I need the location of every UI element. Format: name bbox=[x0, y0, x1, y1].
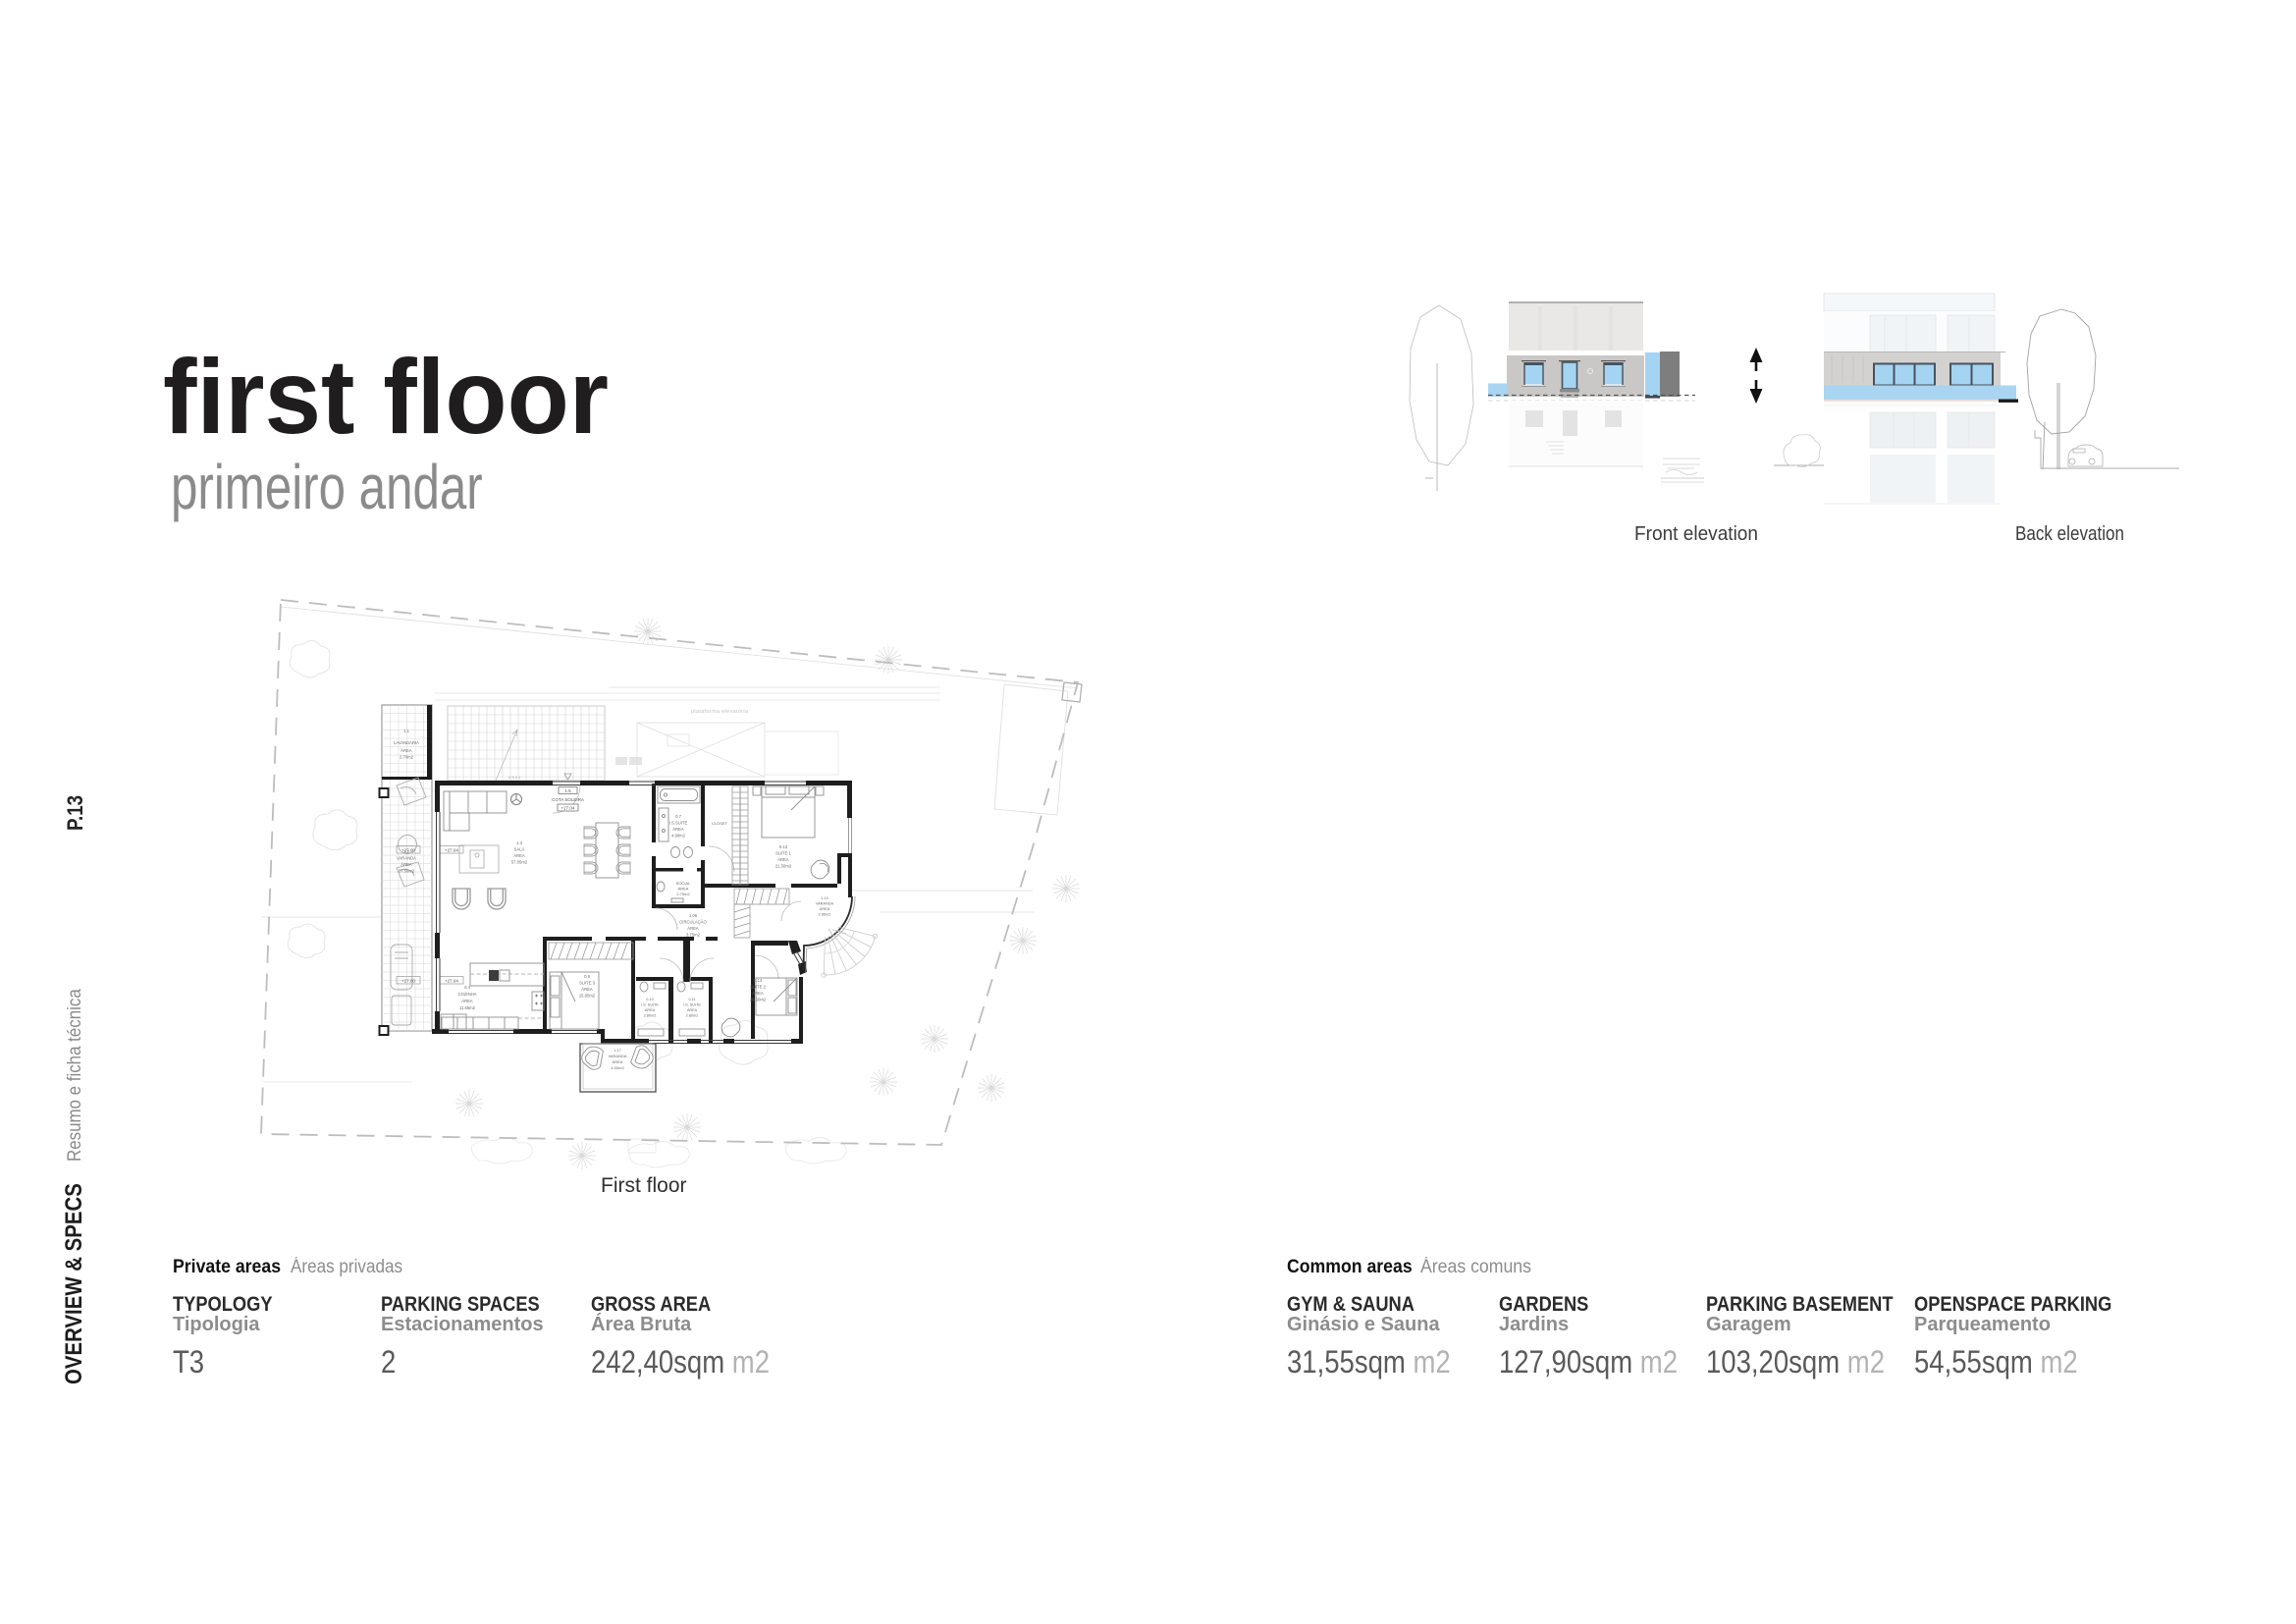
svg-text:11.65m2: 11.65m2 bbox=[459, 1005, 476, 1010]
svg-text:ÁREA: ÁREA bbox=[613, 1059, 623, 1064]
svg-text:ÁREA: ÁREA bbox=[687, 926, 699, 931]
svg-text:4 3 2 1: 4 3 2 1 bbox=[508, 775, 521, 780]
svg-text:0.11: 0.11 bbox=[688, 998, 695, 1001]
svg-text:4.50m2: 4.50m2 bbox=[611, 1065, 624, 1070]
svg-text:3.75m2: 3.75m2 bbox=[686, 933, 701, 938]
svg-text:ÁREA: ÁREA bbox=[461, 999, 473, 1003]
svg-text:2.85m2: 2.85m2 bbox=[819, 913, 831, 917]
svg-text:ÁREA: ÁREA bbox=[513, 853, 525, 858]
svg-text:VARANDA: VARANDA bbox=[816, 902, 834, 906]
svg-text:ÁREA: ÁREA bbox=[687, 1008, 698, 1012]
svg-text:1.06: 1.06 bbox=[689, 913, 698, 918]
svg-text:SUITE 2: SUITE 2 bbox=[750, 985, 766, 990]
svg-text:CLOSET: CLOSET bbox=[712, 821, 728, 826]
svg-text:1.5: 1.5 bbox=[564, 788, 571, 793]
svg-text:21.50m2: 21.50m2 bbox=[775, 864, 792, 869]
svg-text:ÁREA: ÁREA bbox=[400, 748, 412, 753]
svg-text:ÁREA: ÁREA bbox=[820, 907, 830, 911]
svg-text:LAVANDARIA: LAVANDARIA bbox=[394, 740, 419, 745]
svg-text:Back elevation: Back elevation bbox=[2015, 523, 2124, 545]
svg-text:27.50m2: 27.50m2 bbox=[399, 869, 415, 874]
svg-text:1.2: 1.2 bbox=[403, 849, 409, 854]
svg-text:20.50m2: 20.50m2 bbox=[750, 998, 767, 1002]
svg-text:I.S. SUITE: I.S. SUITE bbox=[641, 1003, 659, 1007]
svg-text:2.70m2: 2.70m2 bbox=[400, 755, 414, 760]
svg-text:0.9: 0.9 bbox=[584, 974, 590, 979]
svg-text:15.85m2: 15.85m2 bbox=[579, 994, 596, 999]
svg-text:0.10: 0.10 bbox=[646, 998, 653, 1001]
svg-text:2.80m2: 2.80m2 bbox=[686, 1014, 699, 1018]
svg-text:ÁREA: ÁREA bbox=[645, 1008, 656, 1012]
svg-text:plataforma elevatória: plataforma elevatória bbox=[691, 709, 749, 715]
svg-text:57.05m2: 57.05m2 bbox=[511, 860, 528, 865]
svg-text:1.3: 1.3 bbox=[516, 840, 522, 845]
svg-text:SUITE 1: SUITE 1 bbox=[775, 851, 791, 856]
svg-text:+27.04: +27.04 bbox=[561, 806, 575, 811]
svg-text:SALA: SALA bbox=[514, 847, 525, 852]
svg-text:SOCIAL: SOCIAL bbox=[676, 881, 691, 886]
svg-text:0.4: 0.4 bbox=[464, 985, 470, 990]
svg-text:CIRCULAÇÃO: CIRCULAÇÃO bbox=[679, 920, 707, 925]
svg-text:VARANDA: VARANDA bbox=[608, 1054, 626, 1058]
svg-text:2.80m2: 2.80m2 bbox=[644, 1014, 657, 1018]
svg-text:1.17: 1.17 bbox=[614, 1048, 622, 1053]
svg-text:ÁREA: ÁREA bbox=[777, 857, 789, 862]
svg-text:VARANDA: VARANDA bbox=[397, 856, 416, 861]
svg-text:1.1: 1.1 bbox=[403, 729, 409, 733]
svg-text:SUITE 3: SUITE 3 bbox=[579, 981, 595, 986]
svg-text:ÁREA: ÁREA bbox=[581, 987, 593, 992]
svg-text:0.7: 0.7 bbox=[675, 814, 681, 819]
svg-text:+27.04: +27.04 bbox=[445, 978, 458, 983]
svg-text:I.S. SUITE: I.S. SUITE bbox=[683, 1003, 701, 1007]
svg-text:2.75m2: 2.75m2 bbox=[676, 892, 690, 896]
svg-text:1.10: 1.10 bbox=[821, 896, 828, 900]
svg-text:ÁREA: ÁREA bbox=[678, 887, 689, 892]
svg-text:4.90m2: 4.90m2 bbox=[671, 834, 686, 839]
svg-text:0.13: 0.13 bbox=[779, 844, 788, 849]
svg-text:COTA SOLEIRA: COTA SOLEIRA bbox=[552, 797, 584, 802]
svg-text:ÁREA: ÁREA bbox=[752, 991, 764, 996]
svg-text:ÁREA: ÁREA bbox=[672, 827, 684, 832]
svg-text:I.S.SUITE: I.S.SUITE bbox=[669, 821, 688, 826]
svg-text:+27.00: +27.00 bbox=[401, 978, 415, 983]
svg-text:ÁREA: ÁREA bbox=[400, 862, 412, 867]
svg-text:+27.04: +27.04 bbox=[445, 847, 458, 852]
svg-text:Front elevation: Front elevation bbox=[1634, 523, 1758, 545]
svg-text:COZINHA: COZINHA bbox=[458, 992, 477, 997]
svg-text:0.14: 0.14 bbox=[754, 978, 763, 983]
